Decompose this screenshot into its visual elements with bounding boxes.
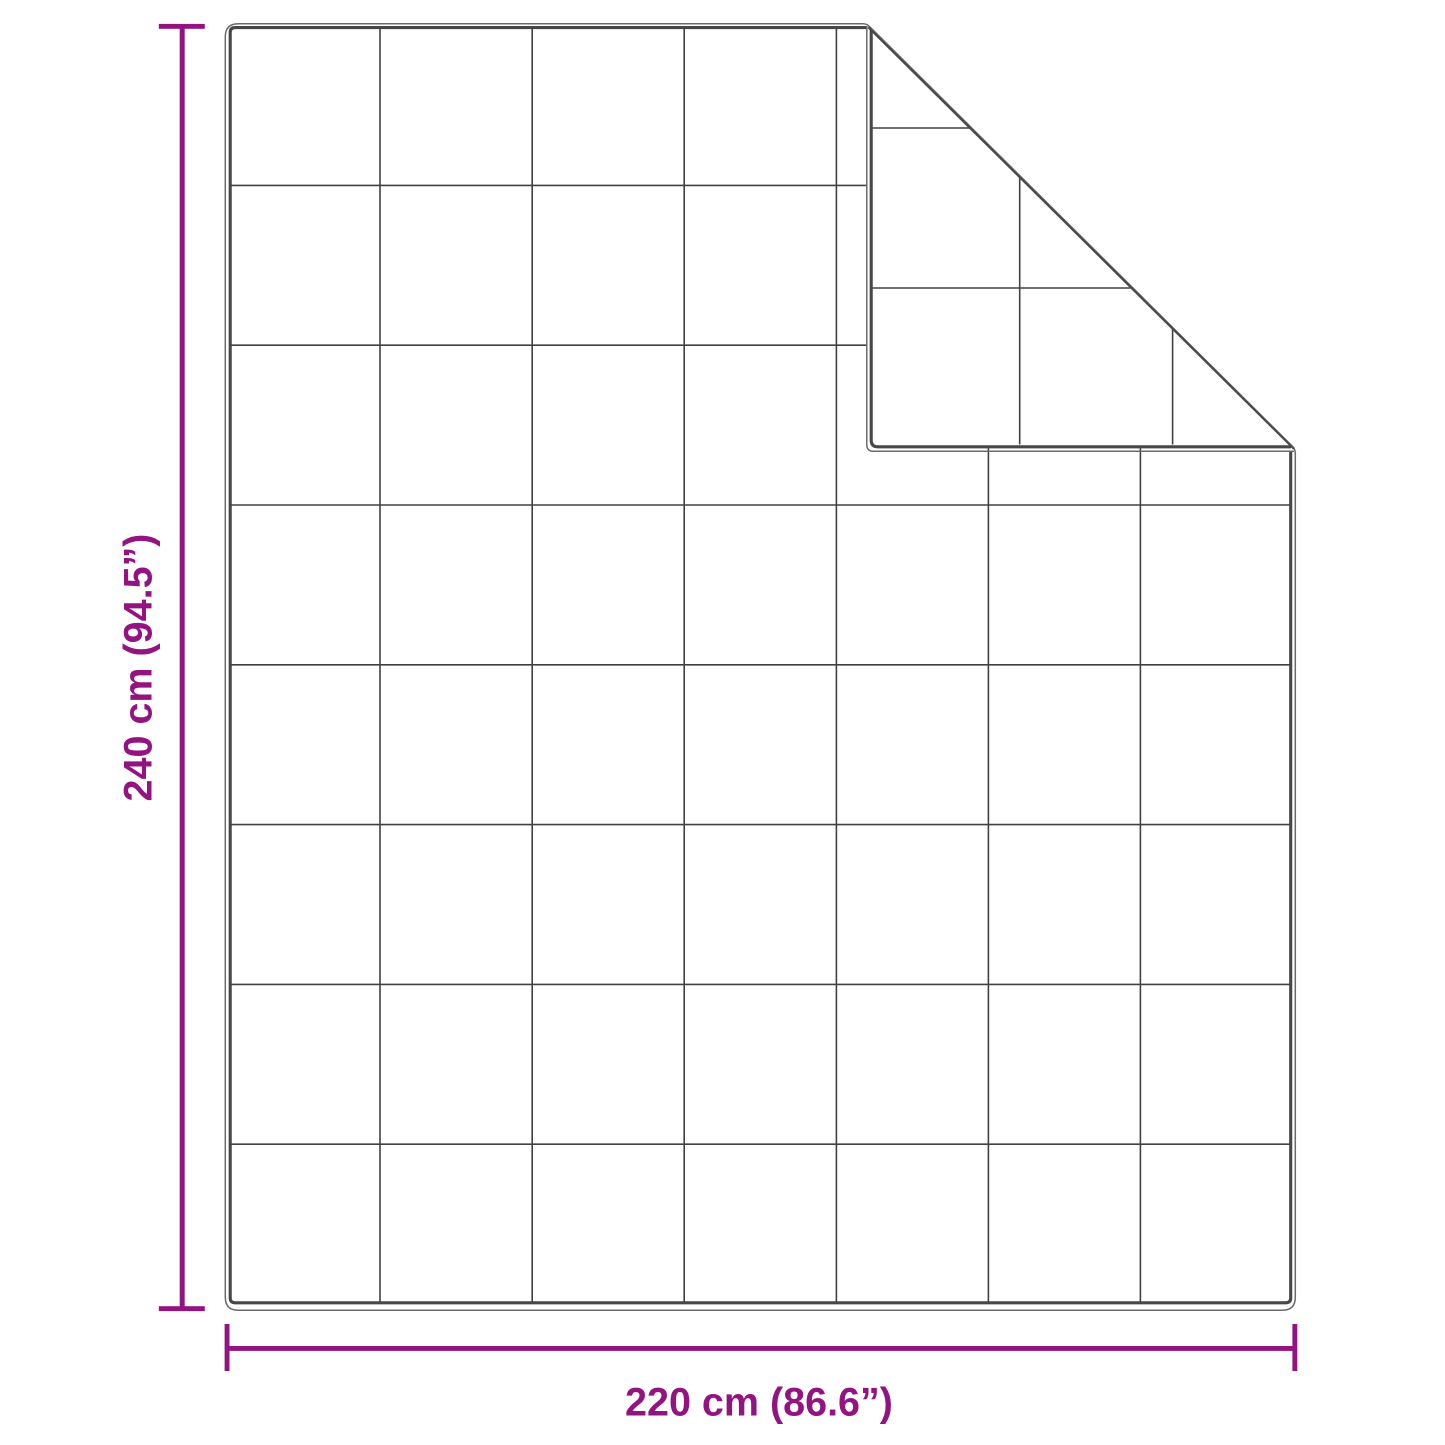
- svg-text:240 cm (94.5”): 240 cm (94.5”): [117, 534, 161, 802]
- svg-text:220 cm (86.6”): 220 cm (86.6”): [625, 1381, 893, 1425]
